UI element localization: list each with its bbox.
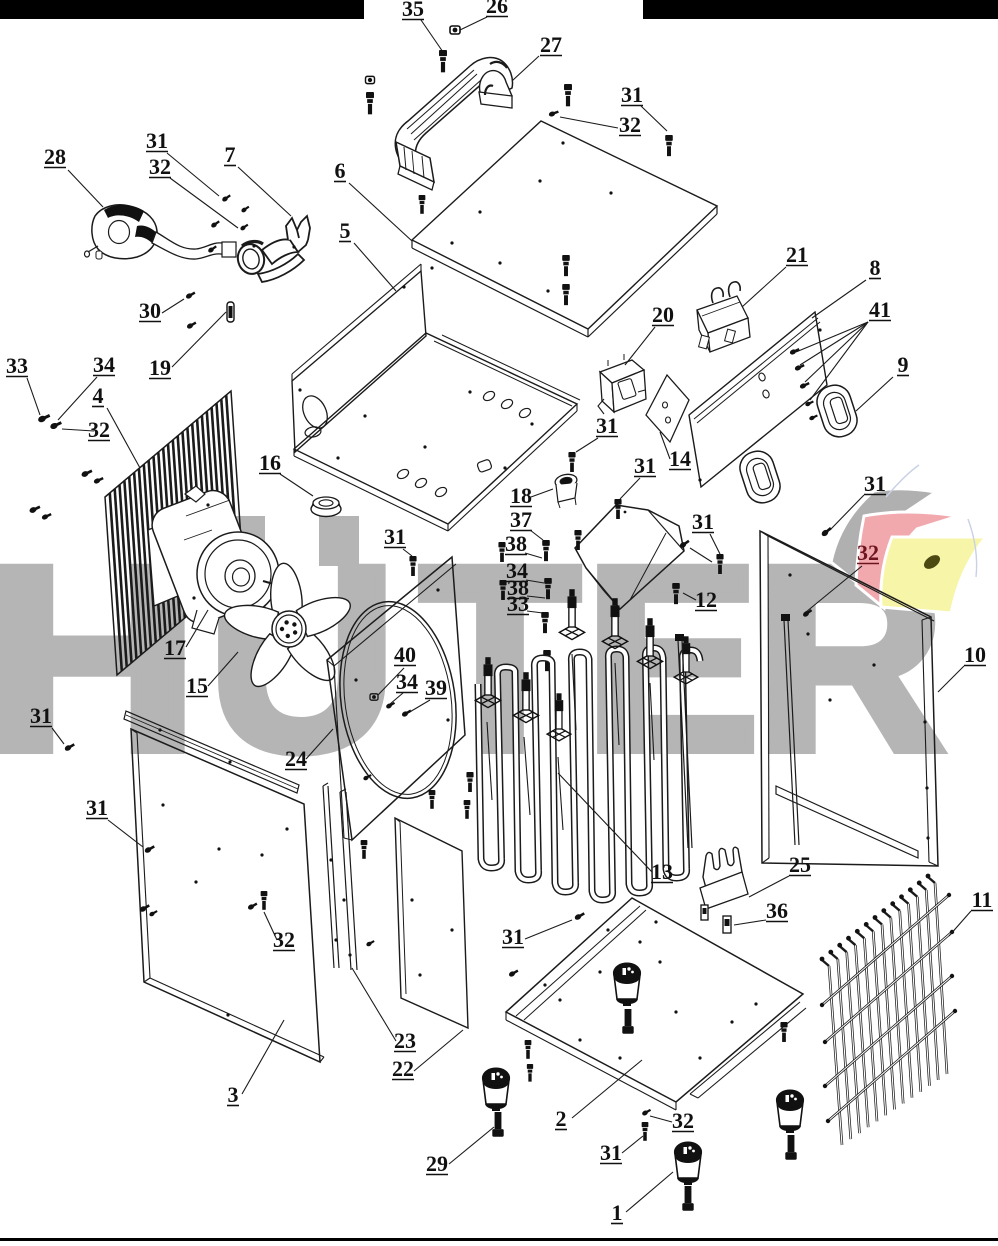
svg-text:31: 31	[502, 924, 524, 949]
svg-text:17: 17	[164, 635, 186, 660]
svg-text:3: 3	[228, 1082, 239, 1107]
svg-text:23: 23	[394, 1028, 416, 1053]
svg-text:10: 10	[964, 642, 986, 667]
svg-text:35: 35	[402, 0, 424, 21]
svg-text:25: 25	[789, 852, 811, 877]
svg-text:29: 29	[426, 1151, 448, 1176]
svg-text:32: 32	[619, 112, 641, 137]
svg-text:28: 28	[44, 144, 66, 169]
svg-text:11: 11	[972, 887, 993, 912]
svg-text:1: 1	[612, 1200, 623, 1225]
svg-text:32: 32	[88, 417, 110, 442]
svg-text:15: 15	[186, 673, 208, 698]
svg-text:32: 32	[857, 540, 879, 565]
svg-text:14: 14	[669, 446, 691, 471]
svg-text:31: 31	[596, 413, 618, 438]
svg-text:33: 33	[6, 353, 28, 378]
svg-text:40: 40	[394, 642, 416, 667]
svg-text:13: 13	[651, 859, 673, 884]
svg-text:26: 26	[486, 0, 508, 18]
svg-text:33: 33	[507, 591, 529, 616]
svg-text:12: 12	[695, 587, 717, 612]
svg-text:32: 32	[672, 1108, 694, 1133]
svg-text:20: 20	[652, 302, 674, 327]
svg-text:2: 2	[556, 1106, 567, 1131]
svg-text:19: 19	[149, 355, 171, 380]
svg-text:5: 5	[340, 218, 351, 243]
svg-text:9: 9	[898, 352, 909, 377]
svg-text:8: 8	[870, 255, 881, 280]
svg-text:31: 31	[146, 128, 168, 153]
svg-text:34: 34	[396, 669, 418, 694]
svg-text:31: 31	[384, 524, 406, 549]
svg-text:6: 6	[335, 158, 346, 183]
svg-text:24: 24	[285, 746, 307, 771]
svg-text:36: 36	[766, 898, 788, 923]
svg-text:34: 34	[93, 352, 115, 377]
svg-text:7: 7	[225, 142, 236, 167]
svg-text:39: 39	[425, 675, 447, 700]
svg-text:31: 31	[600, 1140, 622, 1165]
svg-text:31: 31	[621, 82, 643, 107]
svg-text:31: 31	[634, 453, 656, 478]
svg-text:30: 30	[139, 298, 161, 323]
svg-text:16: 16	[259, 450, 281, 475]
svg-text:22: 22	[392, 1056, 414, 1081]
svg-text:31: 31	[30, 703, 52, 728]
svg-text:21: 21	[786, 242, 808, 267]
svg-text:27: 27	[540, 32, 562, 57]
svg-text:31: 31	[692, 509, 714, 534]
svg-text:41: 41	[869, 297, 891, 322]
svg-text:31: 31	[86, 795, 108, 820]
svg-text:38: 38	[505, 531, 527, 556]
svg-text:4: 4	[93, 383, 104, 408]
svg-text:18: 18	[510, 483, 532, 508]
svg-text:32: 32	[149, 154, 171, 179]
svg-text:37: 37	[510, 507, 532, 532]
svg-text:31: 31	[864, 471, 886, 496]
